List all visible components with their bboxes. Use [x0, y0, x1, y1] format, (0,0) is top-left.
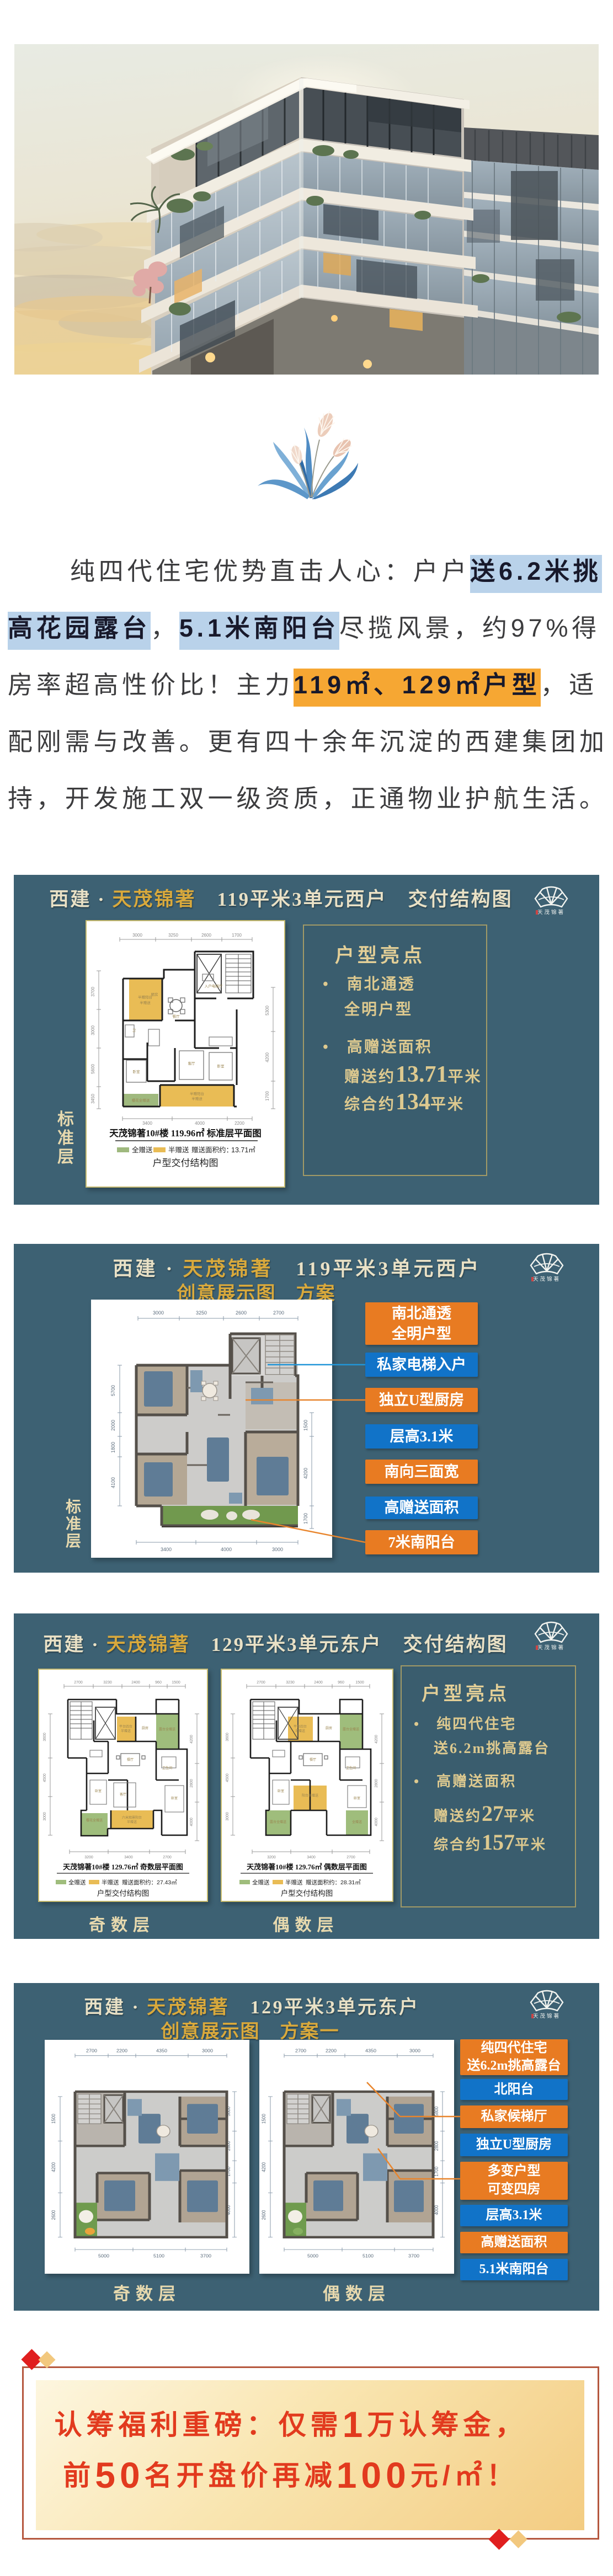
svg-text:半赠送: 半赠送: [295, 1729, 305, 1733]
svg-text:3000: 3000: [90, 1025, 95, 1035]
svg-text:27.43㎡: 27.43㎡: [157, 1879, 177, 1886]
svg-text:3450: 3450: [90, 1094, 95, 1104]
svg-text:卧室: 卧室: [133, 1069, 141, 1074]
svg-text:阳台半赠送: 阳台半赠送: [302, 1793, 318, 1798]
svg-text:客厅: 客厅: [120, 1792, 126, 1797]
svg-text:樱花全赠送: 樱花全赠送: [132, 1098, 150, 1103]
svg-text:餐厅: 餐厅: [173, 1014, 180, 1019]
svg-text:平台四台: 平台四台: [294, 1724, 307, 1729]
svg-text:六米观景阳台: 六米观景阳台: [122, 1815, 142, 1820]
svg-text:赠送面积约：: 赠送面积约：: [191, 1146, 233, 1154]
svg-text:4000: 4000: [190, 1818, 194, 1826]
svg-text:天茂锦著10#楼 129.76㎡ 奇数层平面图: 天茂锦著10#楼 129.76㎡ 奇数层平面图: [63, 1863, 183, 1871]
svg-text:3200: 3200: [84, 1856, 93, 1859]
svg-text:28.31㎡: 28.31㎡: [340, 1879, 361, 1886]
svg-text:卧室: 卧室: [217, 1063, 225, 1068]
svg-text:2400: 2400: [131, 1681, 140, 1685]
svg-text:2400: 2400: [314, 1681, 323, 1685]
svg-text:1700: 1700: [265, 1091, 270, 1101]
svg-text:4200: 4200: [265, 1052, 270, 1062]
svg-text:天茂锦著10#楼 119.96㎡ 标准层平面图: 天茂锦著10#楼 119.96㎡ 标准层平面图: [109, 1127, 261, 1139]
svg-text:3230: 3230: [286, 1681, 295, 1685]
svg-text:4200: 4200: [190, 1735, 194, 1744]
svg-text:半赠送: 半赠送: [121, 1729, 131, 1733]
svg-text:4500: 4500: [43, 1773, 47, 1782]
svg-text:2200: 2200: [234, 1121, 244, 1126]
svg-text:4500: 4500: [226, 1773, 230, 1782]
svg-text:入户电梯厅: 入户电梯厅: [205, 984, 223, 988]
svg-text:客厅: 客厅: [188, 1061, 196, 1066]
svg-text:3000: 3000: [226, 1812, 230, 1821]
svg-text:半赠送: 半赠送: [168, 1146, 189, 1154]
svg-text:半赠送: 半赠送: [102, 1879, 119, 1886]
svg-text:半赠送: 半赠送: [191, 1096, 202, 1101]
svg-text:3600: 3600: [43, 1733, 47, 1741]
svg-text:3000: 3000: [132, 933, 142, 938]
svg-text:960: 960: [155, 1681, 162, 1685]
svg-text:3400: 3400: [307, 1856, 316, 1859]
svg-text:3700: 3700: [90, 987, 95, 997]
svg-text:卫生间: 卫生间: [162, 1766, 172, 1770]
svg-text:厨房: 厨房: [326, 1726, 332, 1730]
svg-text:1500: 1500: [355, 1681, 364, 1685]
svg-text:餐厅: 餐厅: [310, 1757, 316, 1762]
svg-text:3200: 3200: [267, 1856, 276, 1859]
svg-text:半赠送: 半赠送: [127, 1820, 137, 1824]
svg-text:天茂锦著10#楼 129.76㎡ 偶数层平面图: 天茂锦著10#楼 129.76㎡ 偶数层平面图: [247, 1863, 367, 1871]
svg-text:1500: 1500: [172, 1681, 180, 1685]
svg-text:1700: 1700: [232, 933, 242, 938]
svg-text:3600: 3600: [226, 1733, 230, 1741]
svg-text:卧室: 卧室: [278, 1789, 284, 1793]
svg-text:2800: 2800: [190, 1779, 194, 1788]
svg-text:户型交付结构图: 户型交付结构图: [97, 1889, 150, 1898]
svg-text:半赠阳台: 半赠阳台: [190, 1091, 204, 1096]
svg-text:户型交付结构图: 户型交付结构图: [153, 1158, 218, 1168]
svg-text:3400: 3400: [124, 1856, 133, 1859]
svg-text:卫: 卫: [132, 1028, 136, 1033]
svg-text:4000: 4000: [195, 1121, 205, 1126]
svg-text:全赠送: 全赠送: [352, 1820, 362, 1824]
svg-text:平台四台: 平台四台: [119, 1724, 132, 1729]
svg-text:赠送面积约：: 赠送面积约：: [306, 1879, 340, 1886]
svg-text:4000: 4000: [375, 1818, 379, 1826]
svg-text:露台全赠送: 露台全赠送: [270, 1820, 286, 1824]
svg-text:天茂锦著: 天茂锦著: [537, 909, 565, 916]
svg-text:960: 960: [338, 1681, 344, 1685]
svg-text:卧室: 卧室: [95, 1789, 102, 1793]
svg-text:5600: 5600: [90, 1064, 95, 1074]
svg-text:13.71㎡: 13.71㎡: [231, 1146, 255, 1154]
svg-text:2700: 2700: [74, 1681, 83, 1685]
svg-text:3000: 3000: [43, 1812, 47, 1821]
svg-text:3230: 3230: [103, 1681, 112, 1685]
svg-text:卧室: 卧室: [354, 1796, 360, 1800]
svg-text:露台全赠送: 露台全赠送: [343, 1727, 359, 1731]
svg-text:半赠阳台: 半赠阳台: [138, 995, 152, 1000]
svg-text:3250: 3250: [168, 933, 178, 938]
svg-text:全赠送: 全赠送: [132, 1146, 153, 1154]
svg-text:4200: 4200: [375, 1735, 379, 1744]
svg-text:2600: 2600: [201, 933, 211, 938]
svg-text:赠送面积约：: 赠送面积约：: [122, 1879, 157, 1886]
svg-text:户型交付结构图: 户型交付结构图: [281, 1889, 333, 1898]
svg-text:天茂锦著: 天茂锦著: [537, 1644, 565, 1651]
svg-text:2700: 2700: [257, 1681, 265, 1685]
svg-text:卫生间: 卫生间: [346, 1766, 356, 1770]
svg-text:2800: 2800: [375, 1779, 379, 1788]
svg-text:半赠送: 半赠送: [140, 1000, 151, 1005]
svg-text:全赠送: 全赠送: [252, 1879, 270, 1886]
svg-text:餐厅: 餐厅: [127, 1757, 134, 1762]
svg-text:厨房: 厨房: [151, 992, 158, 997]
svg-text:5300: 5300: [265, 1006, 270, 1016]
svg-text:露台全赠送: 露台全赠送: [159, 1727, 175, 1731]
svg-text:卧室: 卧室: [171, 1796, 178, 1800]
svg-text:厨房: 厨房: [142, 1726, 148, 1730]
svg-text:樱花全赠送: 樱花全赠送: [86, 1818, 103, 1823]
svg-text:2700: 2700: [163, 1856, 172, 1859]
svg-text:全赠送: 全赠送: [68, 1879, 86, 1886]
svg-text:2700: 2700: [347, 1856, 355, 1859]
svg-text:3400: 3400: [142, 1121, 152, 1126]
svg-text:半赠送: 半赠送: [285, 1879, 303, 1886]
